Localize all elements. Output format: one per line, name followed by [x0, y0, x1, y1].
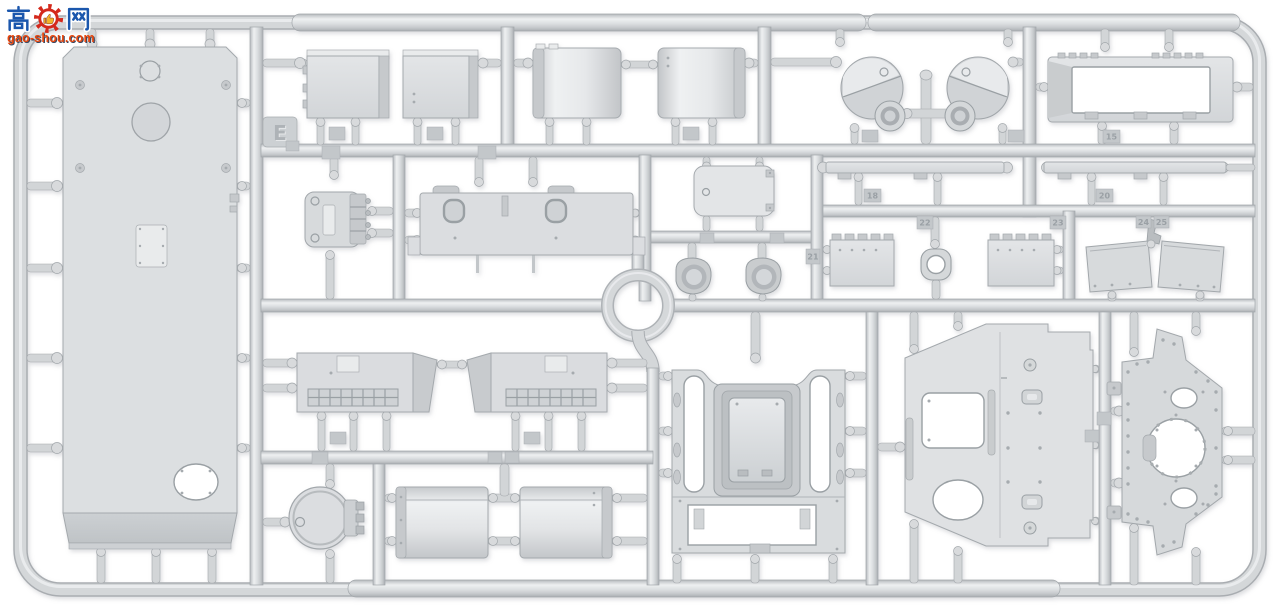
svg-text:25: 25	[1156, 218, 1168, 227]
oval-opening	[933, 480, 983, 520]
watermark-char-wang	[65, 5, 92, 32]
part-fender-strip-right	[1044, 162, 1226, 179]
tag-23: 23	[1050, 216, 1066, 229]
part-open-frame	[1048, 53, 1233, 122]
svg-text:23: 23	[1052, 219, 1063, 228]
part-roof-plate	[1107, 329, 1222, 555]
part-hinged-plate-right	[988, 234, 1054, 286]
part-rear-bulkhead	[672, 370, 845, 553]
grommet-right	[546, 200, 566, 222]
hatch-hinge	[344, 500, 364, 536]
grommet-left	[444, 200, 464, 222]
sprue-letter-tab: E E	[263, 117, 299, 151]
part-hinged-plate-left	[830, 234, 894, 286]
svg-text:24: 24	[1138, 218, 1150, 227]
part-stowage-box-right	[403, 50, 478, 118]
watermark: gao-shou.com	[5, 3, 120, 45]
part-curved-cover-right	[658, 48, 745, 118]
svg-text:21: 21	[807, 253, 819, 262]
tag-20: 20	[1096, 189, 1113, 202]
frame-reinforced-segment	[868, 14, 1240, 31]
capsule-slot-right	[810, 376, 830, 492]
tag-24: 24	[1136, 216, 1151, 228]
part-curved-shell-left	[396, 487, 488, 558]
louver-grille	[506, 389, 596, 406]
part-stowage-box-left	[303, 50, 389, 118]
svg-text:18: 18	[867, 192, 879, 201]
sprue-photo: E E 15 18 20 21 22 23 24 25	[0, 0, 1280, 613]
lower-opening	[688, 505, 816, 545]
frame-reinforced-segment	[348, 580, 1060, 597]
part-curved-cover-left	[533, 44, 621, 118]
svg-text:15: 15	[1106, 133, 1118, 142]
watermark-logo	[5, 3, 120, 34]
oval-opening	[174, 464, 218, 500]
part-rear-deck-panel	[408, 186, 645, 255]
frame-reinforced-segment	[292, 14, 866, 31]
part-side-skirt-left	[297, 353, 437, 412]
tag-22: 22	[917, 216, 933, 229]
tag-15: 15	[1103, 130, 1120, 143]
part-side-plate	[905, 324, 1093, 560]
part-hull-top-panel	[63, 47, 239, 549]
watermark-url: gao-shou.com	[7, 31, 120, 45]
part-hub-right	[945, 101, 975, 131]
access-hatch	[136, 225, 167, 267]
part-clamp-ring	[921, 249, 951, 280]
svg-text:E: E	[273, 121, 287, 145]
louver-grille	[308, 389, 398, 406]
part-cup-right	[746, 258, 781, 294]
photo-stage: E E 15 18 20 21 22 23 24 25	[0, 0, 1280, 613]
part-small-hatch	[694, 166, 774, 216]
tag-21: 21	[806, 249, 820, 264]
part-round-hatch	[289, 487, 364, 549]
svg-text:22: 22	[919, 219, 930, 228]
part-mud-flap-left	[1086, 241, 1152, 292]
svg-text:20: 20	[1099, 192, 1111, 201]
round-opening	[132, 103, 170, 141]
part-mud-flap-right	[1158, 241, 1224, 292]
part-hub-left	[875, 101, 905, 131]
tag-25: 25	[1154, 216, 1169, 228]
square-opening	[922, 393, 984, 448]
part-hinge-bracket	[305, 192, 371, 247]
part-fender-strip-left	[826, 162, 1004, 179]
part-side-skirt-right	[467, 353, 607, 412]
part-cup-left	[676, 258, 711, 294]
tag-18: 18	[864, 189, 881, 202]
watermark-char-gao	[5, 5, 32, 32]
recessed-tub	[714, 384, 800, 496]
part-curved-shell-right	[520, 487, 612, 558]
runner-ring	[606, 243, 671, 372]
capsule-slot-left	[684, 376, 704, 492]
